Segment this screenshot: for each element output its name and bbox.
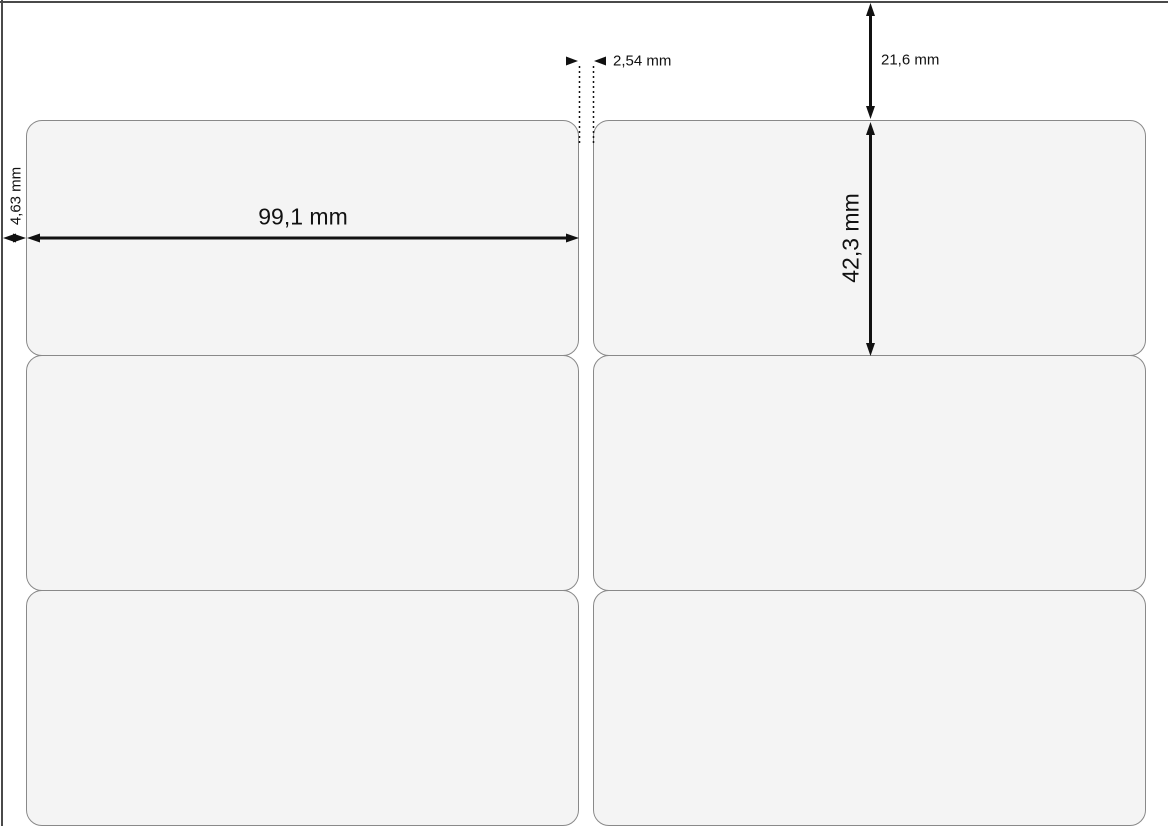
arrowhead-up-icon bbox=[866, 3, 875, 16]
sheet-top-edge bbox=[0, 1, 1168, 3]
arrowhead-down-icon bbox=[866, 106, 875, 119]
arrowhead-left-icon bbox=[3, 234, 16, 243]
arrowhead-left-icon bbox=[594, 57, 606, 66]
left-margin-dimension-text: 4,63 mm bbox=[16, 196, 74, 211]
label-height-dimension-text: 42,3 mm bbox=[851, 238, 940, 261]
column-gap-dimension-text: 2,54 mm bbox=[613, 61, 671, 76]
label-width-value: 99,1 mm bbox=[258, 206, 347, 229]
top-margin-dimension-arrow bbox=[866, 3, 875, 119]
label-height-value: 42,3 mm bbox=[840, 193, 863, 282]
left-margin-dimension-arrow bbox=[3, 234, 26, 243]
arrowhead-right-icon bbox=[13, 234, 26, 243]
label-cell-r3c2 bbox=[593, 590, 1146, 826]
label-cell-r2c2 bbox=[593, 355, 1146, 591]
column-gap-value: 2,54 mm bbox=[613, 54, 671, 69]
label-width-dimension-text: 99,1 mm bbox=[303, 217, 392, 240]
label-cell-r2c1 bbox=[26, 355, 579, 591]
label-sheet-diagram: 99,1 mm 42,3 mm 21,6 mm 2,54 mm 4,63 mm bbox=[0, 0, 1168, 826]
top-margin-value: 21,6 mm bbox=[881, 53, 939, 68]
left-margin-value: 4,63 mm bbox=[9, 167, 24, 225]
arrowhead-right-icon bbox=[566, 57, 578, 66]
sheet-left-edge bbox=[1, 0, 3, 826]
top-margin-dimension-text: 21,6 mm bbox=[881, 60, 939, 75]
label-cell-r3c1 bbox=[26, 590, 579, 826]
